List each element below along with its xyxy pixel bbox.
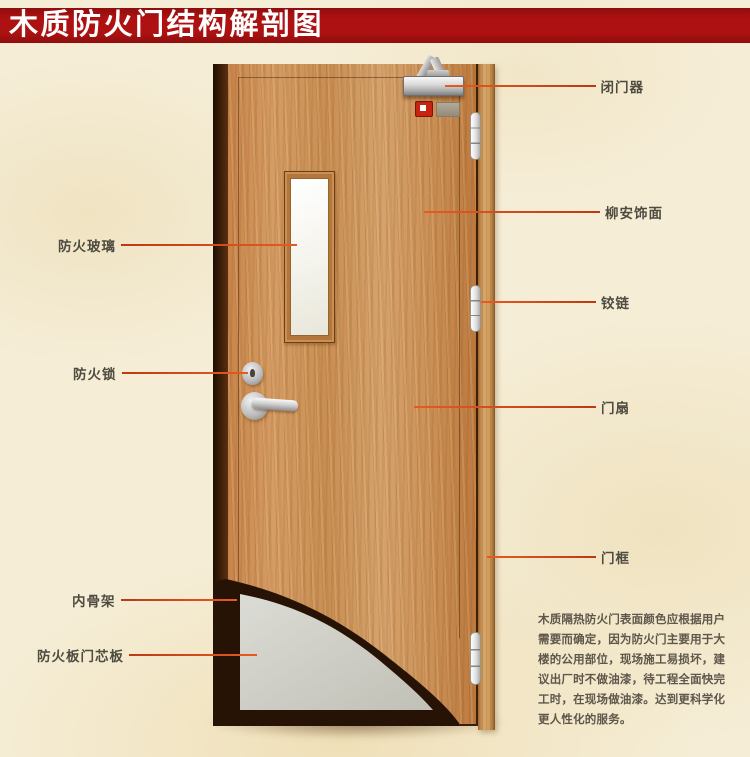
paragraph-line: 需要而确定，因为防火门主要用于大 [538, 630, 720, 650]
leader-line [424, 211, 600, 213]
door-frame-strip [478, 64, 495, 730]
paragraph-line: 木质隔热防火门表面颜色应根据用户 [538, 610, 720, 630]
fire-board-core [240, 594, 433, 710]
page-title: 木质防火门结构解剖图 [0, 8, 324, 43]
label-fire-board-core: 防火板门芯板 [37, 646, 257, 664]
label-fire-glass: 防火玻璃 [58, 236, 297, 254]
leader-line [414, 406, 596, 408]
label-text: 内骨架 [72, 590, 116, 610]
label-lauan-veneer: 柳安饰面 [424, 203, 663, 221]
hinge-top [470, 112, 481, 160]
label-text: 门扇 [601, 397, 630, 417]
keyhole [250, 369, 255, 377]
leader-line [121, 244, 297, 246]
label-door-frame: 门框 [487, 548, 630, 566]
paragraph-line: 楼的公用部位，现场施工易损坏，建 [538, 650, 720, 670]
leader-line [129, 654, 257, 656]
paragraph-line: 工时，在现场做油漆。达到更科学化 [538, 690, 720, 710]
title-banner: 木质防火门结构解剖图 [0, 8, 750, 43]
label-fire-lock: 防火锁 [73, 364, 248, 382]
leader-line [481, 301, 596, 303]
label-door-leaf: 门扇 [414, 398, 630, 416]
mount-plate [436, 102, 460, 117]
label-text: 闭门器 [601, 76, 645, 96]
leader-line [487, 556, 596, 558]
paragraph-line: 更人性化的服务。 [538, 710, 720, 730]
leader-line [122, 372, 249, 374]
label-door-closer: 闭门器 [445, 77, 644, 95]
leader-line [121, 599, 238, 601]
label-inner-skeleton: 内骨架 [72, 591, 237, 609]
leader-line [445, 85, 596, 87]
label-hinge: 铰链 [481, 293, 630, 311]
hinge-bottom [470, 632, 481, 685]
label-text: 防火玻璃 [58, 235, 116, 255]
label-text: 防火板门芯板 [37, 645, 124, 665]
glass-pane [290, 178, 329, 336]
alarm-indicator [415, 101, 433, 117]
label-text: 防火锁 [73, 363, 117, 383]
label-text: 门框 [601, 547, 630, 567]
fire-glass-window [284, 171, 335, 343]
door-inset-groove [238, 77, 460, 638]
label-text: 铰链 [601, 292, 630, 312]
paragraph-line: 议出厂时不做油漆，待工程全面快完 [538, 670, 720, 690]
fire-door-infographic: 木质防火门结构解剖图 防火玻璃 防火锁 [0, 0, 750, 757]
description-paragraph: 木质隔热防火门表面颜色应根据用户 需要而确定，因为防火门主要用于大 楼的公用部位… [538, 610, 720, 730]
label-text: 柳安饰面 [605, 202, 663, 222]
alarm-indicator-window [420, 105, 426, 111]
hinge-middle [470, 285, 481, 332]
